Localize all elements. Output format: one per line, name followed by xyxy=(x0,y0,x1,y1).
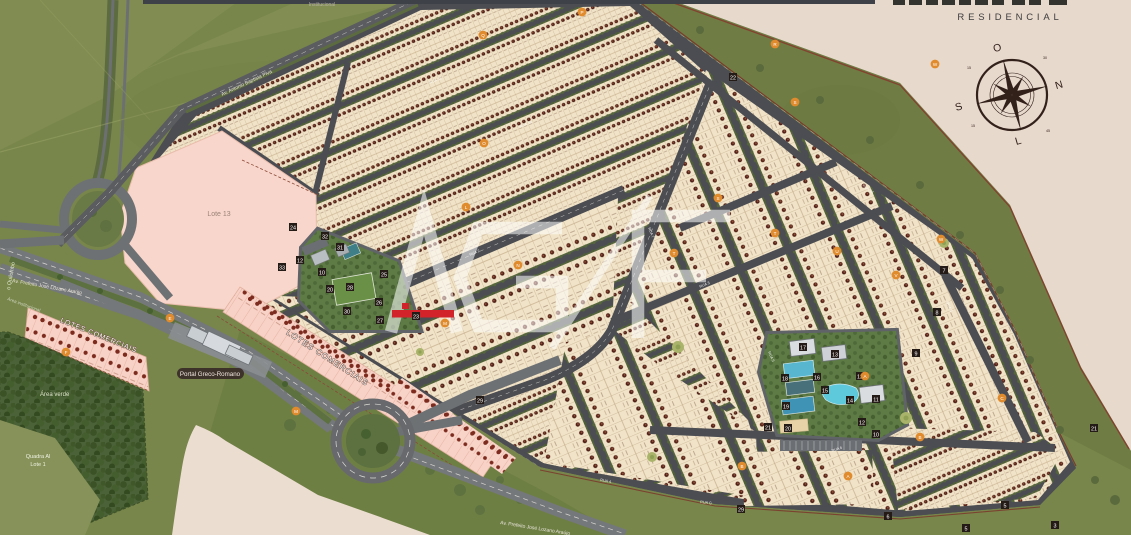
svg-text:14: 14 xyxy=(847,399,853,405)
svg-text:19: 19 xyxy=(783,405,789,411)
svg-text:Área verde: Área verde xyxy=(40,391,70,398)
svg-text:20: 20 xyxy=(327,288,333,294)
svg-text:Quadra Al: Quadra Al xyxy=(26,454,50,460)
svg-text:45: 45 xyxy=(1046,129,1050,133)
svg-text:20: 20 xyxy=(785,427,791,433)
svg-text:B: B xyxy=(918,435,921,440)
svg-text:M: M xyxy=(294,409,298,414)
svg-text:15: 15 xyxy=(967,66,971,70)
svg-text:31: 31 xyxy=(337,246,343,252)
svg-text:W: W xyxy=(939,237,944,242)
svg-text:T: T xyxy=(673,251,676,256)
svg-text:12: 12 xyxy=(859,421,865,427)
svg-text:E: E xyxy=(168,316,171,321)
svg-text:32: 32 xyxy=(322,235,328,241)
svg-text:10: 10 xyxy=(873,433,879,439)
svg-text:3: 3 xyxy=(1054,524,1057,530)
svg-text:8: 8 xyxy=(936,311,939,317)
svg-text:15: 15 xyxy=(822,389,828,395)
svg-text:6: 6 xyxy=(887,515,890,521)
svg-text:13: 13 xyxy=(832,353,838,359)
svg-text:26: 26 xyxy=(376,301,382,307)
svg-text:Q: Q xyxy=(481,33,485,38)
svg-text:29: 29 xyxy=(738,508,744,514)
svg-text:10: 10 xyxy=(319,271,325,277)
svg-text:Lote 13: Lote 13 xyxy=(207,211,230,218)
svg-text:S: S xyxy=(793,100,796,105)
svg-text:B: B xyxy=(740,464,743,469)
svg-text:5: 5 xyxy=(1004,504,1007,510)
svg-text:Institucional: Institucional xyxy=(309,2,335,8)
svg-text:24: 24 xyxy=(290,226,296,232)
svg-text:7: 7 xyxy=(943,269,946,275)
svg-text:F: F xyxy=(65,350,68,355)
svg-text:Lote 1: Lote 1 xyxy=(30,462,45,468)
svg-text:L: L xyxy=(465,205,468,210)
svg-text:25: 25 xyxy=(381,273,387,279)
svg-text:23: 23 xyxy=(413,315,419,321)
svg-text:12: 12 xyxy=(297,259,303,265)
svg-text:U: U xyxy=(835,249,838,254)
svg-text:9: 9 xyxy=(915,352,918,358)
svg-text:N: N xyxy=(516,263,519,268)
svg-text:11: 11 xyxy=(873,398,879,404)
svg-text:P: P xyxy=(580,10,583,15)
svg-text:Portal Greco-Romano: Portal Greco-Romano xyxy=(180,371,241,378)
svg-text:RESIDENCIAL: RESIDENCIAL xyxy=(957,12,1062,23)
svg-text:28: 28 xyxy=(347,286,353,292)
svg-text:29: 29 xyxy=(477,399,483,405)
svg-text:30: 30 xyxy=(344,310,350,316)
svg-text:16: 16 xyxy=(814,376,820,382)
svg-text:17: 17 xyxy=(800,346,806,352)
svg-text:15: 15 xyxy=(971,124,975,128)
svg-text:18: 18 xyxy=(782,377,788,383)
svg-text:21: 21 xyxy=(1091,427,1097,433)
svg-text:22: 22 xyxy=(730,76,736,82)
svg-text:O: O xyxy=(482,141,486,146)
svg-text:5: 5 xyxy=(965,527,968,533)
svg-text:M: M xyxy=(443,321,447,326)
svg-text:T: T xyxy=(774,231,777,236)
svg-text:W: W xyxy=(933,62,938,67)
svg-text:S: S xyxy=(716,196,719,201)
svg-text:30: 30 xyxy=(1043,56,1047,60)
svg-text:33: 33 xyxy=(279,266,285,272)
svg-text:27: 27 xyxy=(377,319,383,325)
svg-text:21: 21 xyxy=(765,426,771,432)
